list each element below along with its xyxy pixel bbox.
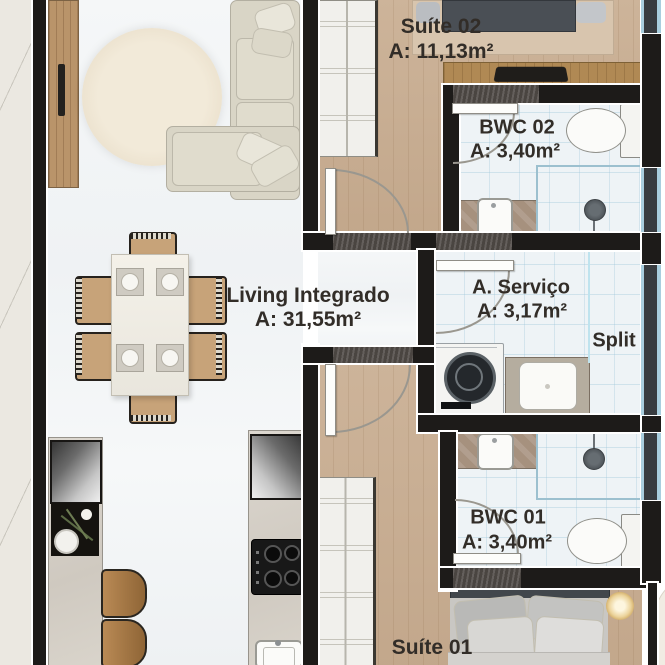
place-setting [156,344,184,372]
doorway-suite02 [333,233,411,250]
bwc02-shower-glass [536,165,642,167]
kitchen-appliance-right [250,434,306,500]
counter-decor-box [51,503,99,556]
dining-chair-right [185,332,227,381]
door-leaf-bwc01 [453,553,521,564]
faucet-icon [491,203,496,208]
suite02-pillow [576,2,606,23]
tv-icon [58,64,65,116]
dining-chair-bottom [129,392,177,424]
place-setting [156,268,184,296]
bwc01-label: BWC 01 [470,507,546,530]
bwc01-shower-glass [536,498,642,500]
washing-machine [432,343,504,415]
decor-plate [54,529,79,554]
window-bwc02 [641,168,661,232]
wall-right-seg [642,232,661,265]
faucet-icon [275,640,281,646]
decor-flower [81,509,92,520]
wall-bwc01-left [440,432,456,590]
bwc01-shower-head [583,448,605,470]
doorway-suite01 [333,347,413,363]
door-leaf-suite02 [325,168,336,235]
laundry-tub-basin [519,362,577,410]
cooktop [251,539,304,595]
bar-stool [101,569,147,618]
suite02-wardrobe [318,0,378,157]
wall-right-seg [642,500,661,583]
door-leaf-bwc02 [452,103,518,114]
dining-chair-right [185,276,227,325]
door-leaf-suite01 [325,364,336,436]
bwc02-shower-head [584,199,606,221]
wall-right-thin [648,583,657,665]
bwc01-sink [477,433,514,470]
bar-stool [101,619,147,665]
place-setting [116,344,144,372]
servico-area-label: A: 3,17m² [477,301,567,324]
bwc01-shower-glass [536,432,538,500]
doorway-bwc01 [453,568,521,588]
bedside-lamp [606,592,634,620]
living-label: Living Integrado [226,284,389,308]
wall-right-seg [642,33,661,168]
split-label: Split [592,330,635,353]
place-setting [116,268,144,296]
kitchen-appliance-left [50,440,102,504]
door-leaf-servico [436,260,514,271]
outside-area-left [0,0,33,665]
wall-right-seg [642,415,661,433]
suite01-label: Suíte 01 [392,636,473,660]
bwc02-sink [477,198,513,237]
kitchen-sink [255,640,303,665]
floor-plan: Suíte 02 A: 11,13m² BWC 02 A: 3,40m² Liv… [0,0,665,665]
wall-h3 [418,415,658,432]
wall-central-top [303,0,318,250]
doorway-servico [436,233,512,250]
bwc01-area-label: A: 3,40m² [462,532,552,555]
wall-central-bottom [303,345,318,665]
living-area-label: A: 31,55m² [255,308,361,332]
suite02-label: Suíte 02 [401,15,482,39]
wall-servico-left [418,250,434,415]
suite02-tv [493,67,568,82]
suite01-wardrobe [317,477,376,665]
window-bwc01 [641,433,661,500]
servico-glass-partition [588,252,590,363]
suite02-area-label: A: 11,13m² [388,40,493,64]
window-servico [641,265,661,415]
bwc02-area-label: A: 3,40m² [470,141,560,164]
bwc02-toilet-bowl [566,108,626,153]
servico-label: A. Serviço [472,277,570,300]
doorway-bwc02 [453,85,539,103]
bwc01-toilet-bowl [567,518,627,564]
bwc02-label: BWC 02 [479,117,555,140]
faucet-icon [492,438,497,443]
wall-left [33,0,46,665]
bwc02-shower-glass [536,165,538,233]
window-suite02 [641,0,661,33]
